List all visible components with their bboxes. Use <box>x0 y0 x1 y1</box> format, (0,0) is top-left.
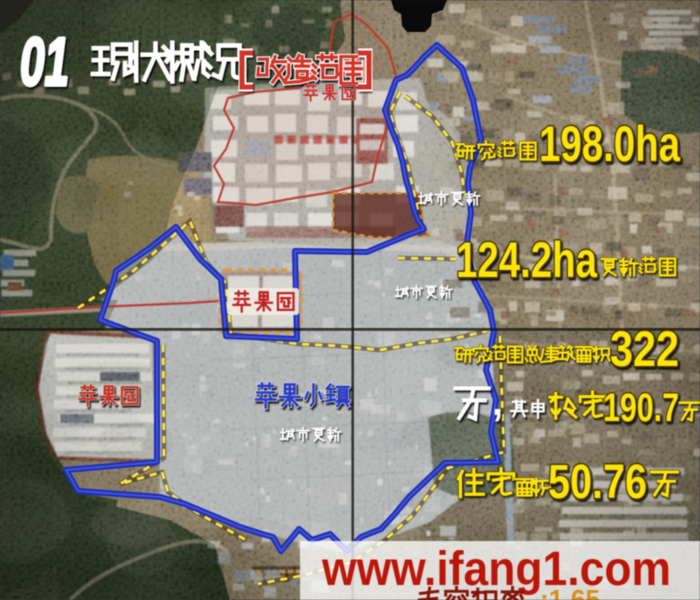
svg-text:,: , <box>492 380 503 424</box>
svg-text:50.76: 50.76 <box>548 456 647 509</box>
svg-text:124.2ha: 124.2ha <box>456 232 598 288</box>
svg-text:322: 322 <box>610 321 679 377</box>
svg-text::1.65: :1.65 <box>540 584 600 600</box>
svg-text:www.ifang1.com: www.ifang1.com <box>321 543 671 596</box>
svg-text:198.0ha: 198.0ha <box>539 116 681 172</box>
svg-text:01: 01 <box>20 24 69 100</box>
svg-text:190.7: 190.7 <box>603 386 679 430</box>
